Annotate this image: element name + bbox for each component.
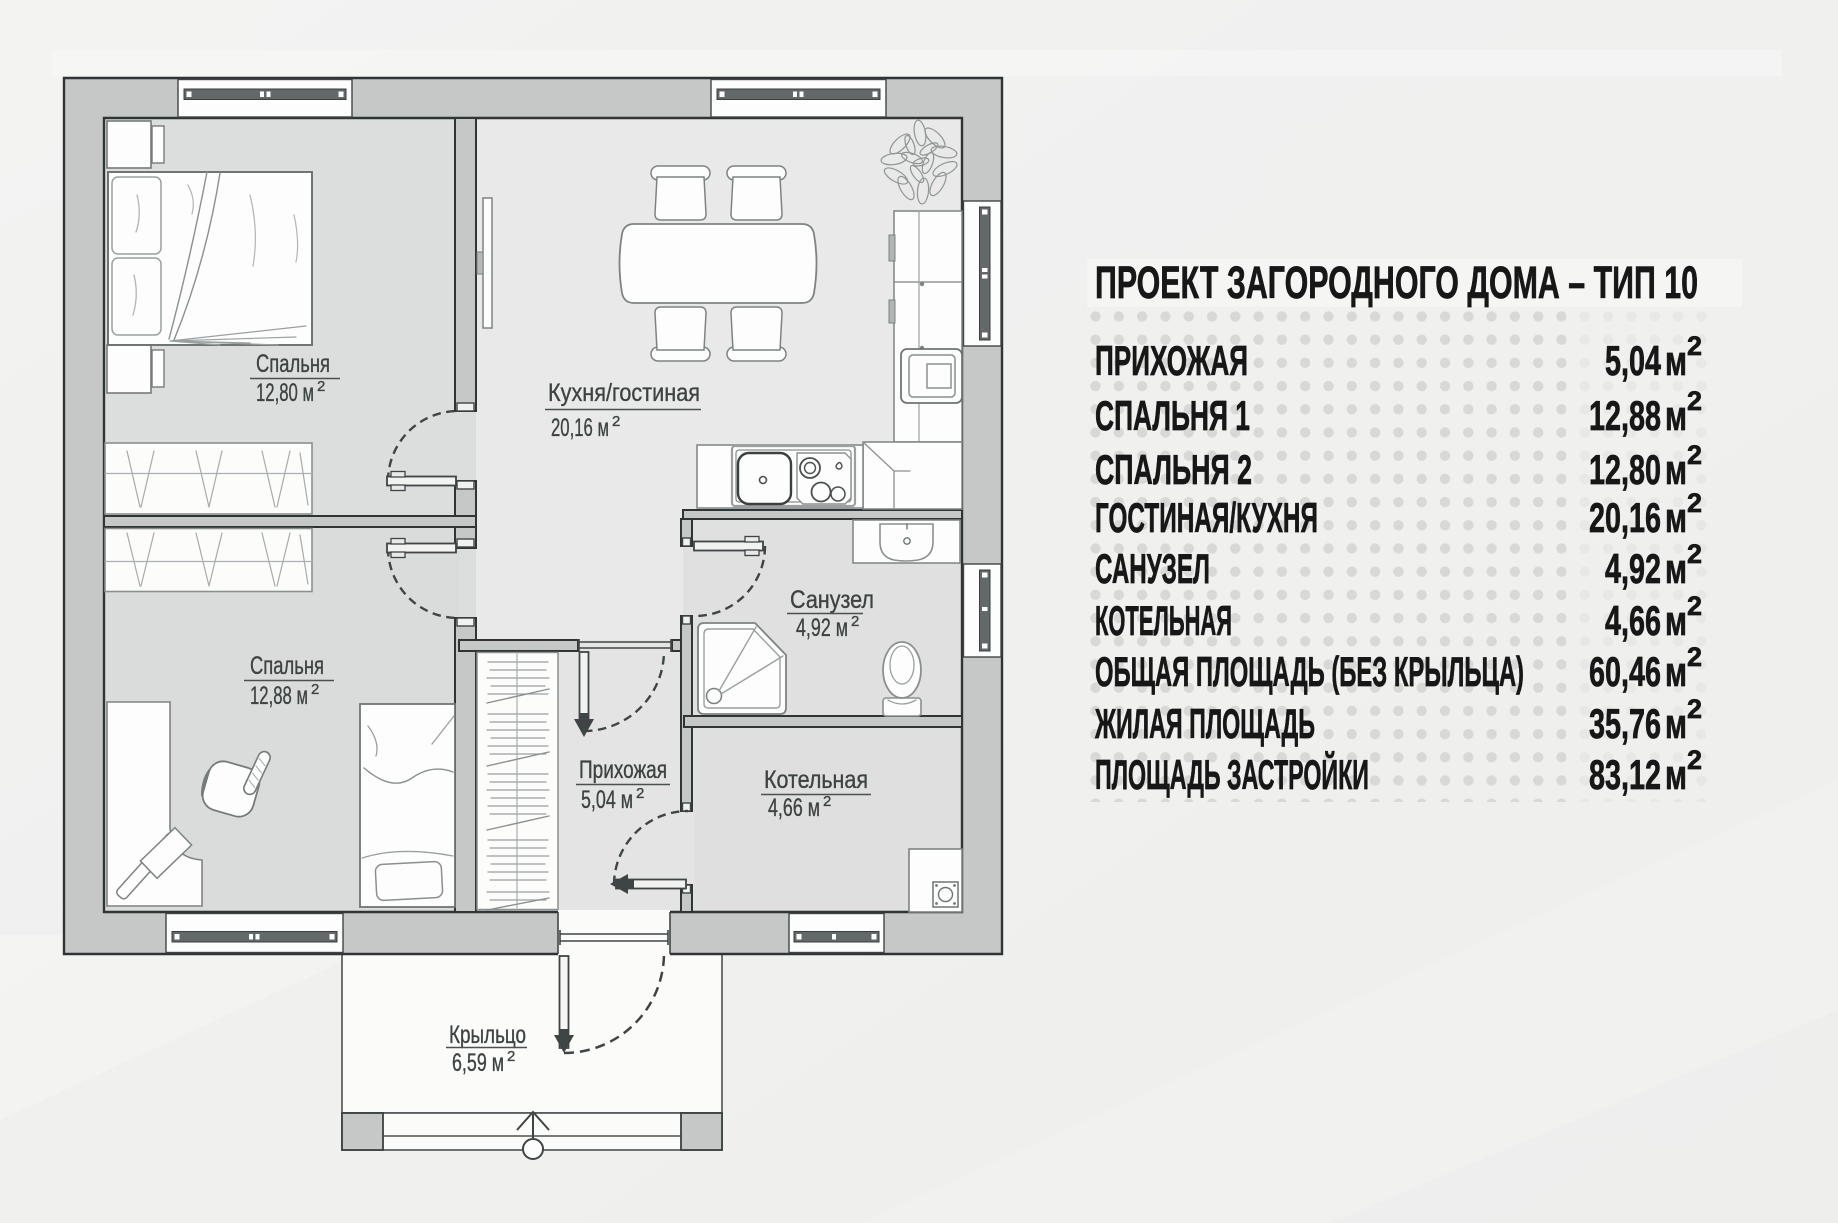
svg-text:2: 2 (311, 681, 319, 698)
svg-text:ПЛОЩАДЬ ЗАСТРОЙКИ: ПЛОЩАДЬ ЗАСТРОЙКИ (1095, 750, 1369, 798)
svg-text:12,88: 12,88 (1589, 392, 1661, 439)
svg-text:6,59 м: 6,59 м (452, 1049, 504, 1077)
svg-text:м: м (1665, 597, 1687, 644)
svg-text:2: 2 (1687, 331, 1702, 361)
svg-text:Спальня: Спальня (256, 350, 330, 378)
svg-text:2: 2 (1687, 694, 1702, 724)
svg-text:КОТЕЛЬНАЯ: КОТЕЛЬНАЯ (1095, 597, 1232, 644)
svg-text:2: 2 (507, 1048, 515, 1065)
svg-text:12,88 м: 12,88 м (250, 682, 308, 710)
svg-text:12,80 м: 12,80 м (256, 379, 314, 407)
svg-text:СПАЛЬНЯ 1: СПАЛЬНЯ 1 (1095, 392, 1250, 439)
svg-text:2: 2 (612, 413, 620, 430)
svg-text:ЖИЛАЯ ПЛОЩАДЬ: ЖИЛАЯ ПЛОЩАДЬ (1094, 700, 1315, 747)
svg-text:12,80: 12,80 (1589, 446, 1661, 493)
svg-text:4,92: 4,92 (1605, 545, 1661, 592)
svg-text:2: 2 (1687, 440, 1702, 470)
svg-text:4,66 м: 4,66 м (768, 794, 820, 822)
svg-text:ГОСТИНАЯ/КУХНЯ: ГОСТИНАЯ/КУХНЯ (1095, 494, 1318, 541)
svg-text:60,46: 60,46 (1589, 648, 1661, 695)
svg-text:2: 2 (1687, 591, 1702, 621)
svg-text:2: 2 (851, 613, 859, 630)
svg-text:4,92 м: 4,92 м (796, 614, 848, 642)
svg-text:5,04 м: 5,04 м (581, 786, 633, 814)
svg-text:Кухня/гостиная: Кухня/гостиная (548, 379, 700, 407)
svg-text:2: 2 (636, 785, 644, 802)
svg-text:Котельная: Котельная (764, 766, 868, 794)
svg-text:35,76: 35,76 (1589, 700, 1661, 747)
svg-text:20,16: 20,16 (1589, 494, 1661, 541)
svg-text:2: 2 (1687, 539, 1702, 569)
svg-text:ПРОЕКТ ЗАГОРОДНОГО ДОМА – ТИП: ПРОЕКТ ЗАГОРОДНОГО ДОМА – ТИП 10 (1095, 257, 1698, 308)
svg-text:20,16 м: 20,16 м (551, 414, 609, 442)
svg-text:м: м (1665, 648, 1687, 695)
svg-text:Санузел: Санузел (790, 586, 874, 614)
svg-text:ПРИХОЖАЯ: ПРИХОЖАЯ (1095, 337, 1248, 384)
svg-text:2: 2 (1687, 386, 1702, 416)
svg-text:Спальня: Спальня (250, 652, 324, 680)
svg-text:2: 2 (1687, 745, 1702, 775)
svg-text:м: м (1665, 446, 1687, 493)
svg-text:Крыльцо: Крыльцо (449, 1021, 526, 1049)
svg-text:САНУЗЕЛ: САНУЗЕЛ (1095, 545, 1210, 592)
svg-text:83,12: 83,12 (1589, 751, 1661, 798)
svg-text:2: 2 (1687, 488, 1702, 518)
svg-text:2: 2 (1687, 642, 1702, 672)
svg-text:4,66: 4,66 (1605, 597, 1661, 644)
svg-text:м: м (1665, 337, 1687, 384)
svg-text:СПАЛЬНЯ 2: СПАЛЬНЯ 2 (1095, 446, 1252, 493)
svg-text:Прихожая: Прихожая (579, 756, 667, 784)
svg-text:5,04: 5,04 (1605, 337, 1661, 384)
svg-text:ОБЩАЯ ПЛОЩАДЬ (БЕЗ КРЫЛЬЦА): ОБЩАЯ ПЛОЩАДЬ (БЕЗ КРЫЛЬЦА) (1095, 648, 1524, 695)
svg-text:м: м (1665, 392, 1687, 439)
svg-text:м: м (1665, 751, 1687, 798)
svg-text:м: м (1665, 700, 1687, 747)
svg-text:2: 2 (823, 793, 831, 810)
svg-text:2: 2 (317, 378, 325, 395)
svg-text:м: м (1665, 494, 1687, 541)
svg-text:м: м (1665, 545, 1687, 592)
